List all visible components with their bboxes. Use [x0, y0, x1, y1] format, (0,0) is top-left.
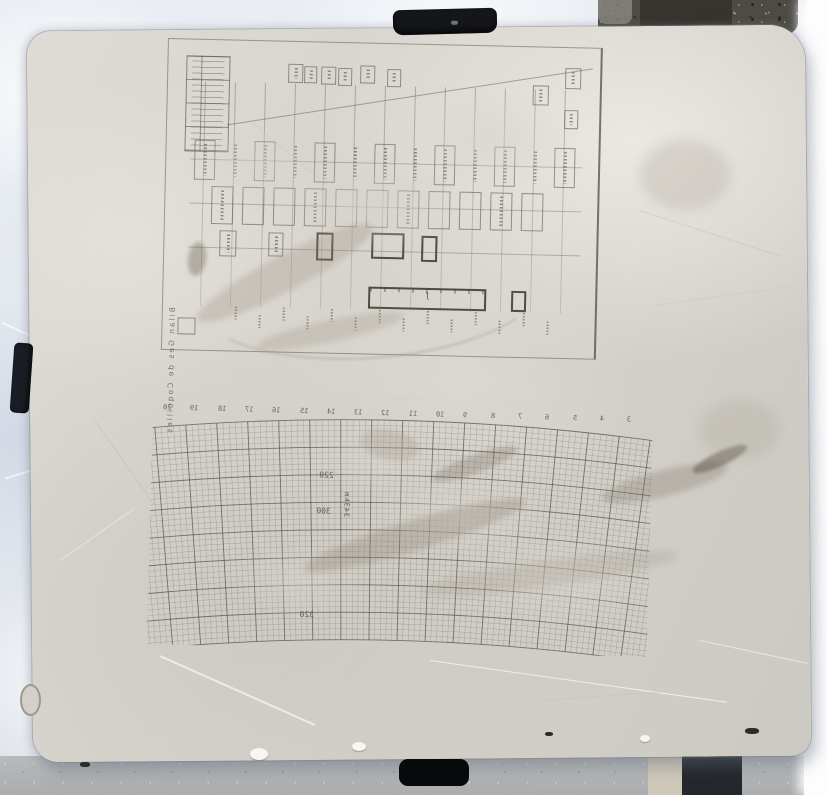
distance-label: 343km	[342, 491, 351, 517]
connector-line	[560, 90, 566, 314]
engraved-box	[338, 68, 352, 86]
engraved-box	[177, 317, 195, 334]
engraved-box	[219, 230, 237, 256]
engraved-box	[335, 189, 358, 227]
dark-speck	[80, 762, 90, 767]
concrete-beige-strip	[648, 756, 682, 795]
stain-smudge	[700, 400, 780, 460]
scale-number: 11	[409, 410, 418, 418]
stain-smudge	[640, 140, 730, 210]
bottom-tick-label	[523, 313, 525, 326]
engraved-box	[564, 110, 578, 129]
engraved-box	[428, 191, 451, 229]
scale-number: 15	[299, 407, 308, 415]
scale-number: 3	[627, 415, 631, 423]
scale-number: 14	[327, 408, 336, 416]
engraved-box	[387, 69, 401, 87]
concrete-dark-stripe	[682, 756, 742, 795]
engraved-box	[304, 66, 317, 83]
scale-number: 16	[272, 406, 281, 414]
dark-speck	[545, 732, 553, 736]
scale-number: 17	[245, 405, 254, 413]
scale-number: 4	[600, 415, 604, 423]
engraved-box	[211, 186, 234, 224]
edge-notch	[20, 684, 41, 716]
scale-number: 5	[572, 414, 576, 422]
scale-number: 18	[217, 405, 226, 413]
engraved-box	[397, 190, 420, 228]
stone-chip	[250, 748, 268, 760]
engraved-box	[366, 190, 389, 228]
arc-label-220: 220	[319, 470, 334, 479]
photo-of-litho-stone: Bilan Ges de Coquilles 20191817161514131…	[0, 0, 827, 795]
clip-bottom	[399, 759, 469, 786]
arc-label-320: 320	[300, 610, 315, 619]
gravel-light-chunk	[598, 0, 632, 24]
scale-number: 13	[354, 408, 363, 416]
arc-label-300: 300	[316, 506, 331, 515]
scale-number: 9	[463, 411, 467, 419]
scale-number: 12	[381, 409, 390, 417]
dark-speck	[745, 728, 759, 734]
scale-number: 20	[163, 403, 172, 411]
engraved-box	[321, 66, 336, 84]
scale-number: 10	[436, 410, 445, 418]
legend-table	[184, 55, 230, 152]
stone-chip	[352, 742, 366, 751]
bottom-tick-label	[546, 322, 548, 335]
engraved-box	[360, 65, 375, 83]
scale-number: 8	[490, 412, 494, 420]
engraved-box	[459, 192, 482, 230]
scale-number: 7	[518, 413, 522, 421]
scale-number: 19	[190, 404, 199, 412]
clip-top	[393, 8, 498, 36]
engraved-box	[288, 64, 303, 83]
scale-number: 6	[545, 413, 549, 421]
stone-chip	[640, 735, 650, 742]
